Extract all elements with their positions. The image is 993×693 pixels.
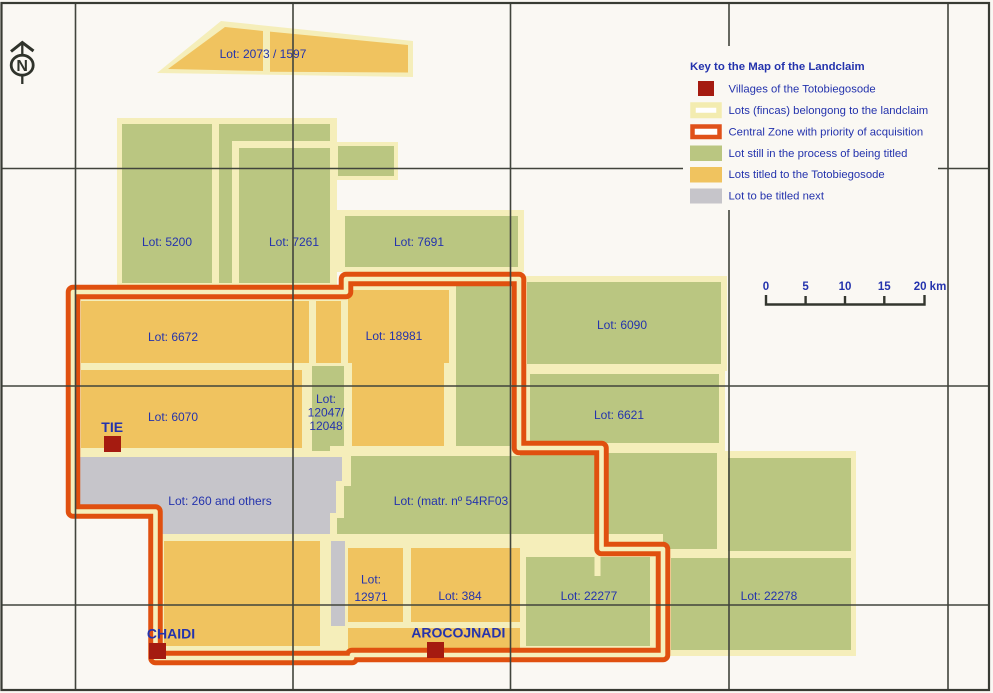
- svg-text:Lot: 384: Lot: 384: [438, 589, 482, 603]
- svg-text:Lot: 7691: Lot: 7691: [394, 235, 444, 249]
- svg-text:Lot: 6621: Lot: 6621: [594, 408, 644, 422]
- svg-text:Central Zone with priority of: Central Zone with priority of acquisitio…: [729, 126, 924, 138]
- svg-text:Lot: 260 and others: Lot: 260 and others: [168, 494, 271, 508]
- svg-text:Key to the Map of the Landclai: Key to the Map of the Landclaim: [690, 61, 865, 73]
- svg-text:Lots (fincas) belongong to the: Lots (fincas) belongong to the landclaim: [729, 105, 929, 117]
- svg-text:Lot: 6070: Lot: 6070: [148, 410, 198, 424]
- svg-text:Lot: 5200: Lot: 5200: [142, 235, 192, 249]
- svg-text:0: 0: [763, 281, 769, 293]
- svg-text:Lot still in the process of be: Lot still in the process of being titled: [729, 148, 908, 160]
- svg-text:Lot: 6090: Lot: 6090: [597, 318, 647, 332]
- svg-text:Lot: 22277: Lot: 22277: [561, 589, 618, 603]
- svg-text:Lots titled to the Totobiegoso: Lots titled to the Totobiegosode: [729, 169, 885, 181]
- svg-text:Lot:: Lot:: [361, 573, 381, 587]
- svg-text:Lot: 6672: Lot: 6672: [148, 330, 198, 344]
- svg-text:Villages of the Totobiegosode: Villages of the Totobiegosode: [729, 84, 876, 96]
- svg-text:Lot to be titled next: Lot to be titled next: [729, 191, 825, 203]
- svg-text:Lot:: Lot:: [316, 392, 336, 406]
- svg-text:Lot: 18981: Lot: 18981: [366, 329, 423, 343]
- svg-text:20 km: 20 km: [914, 281, 947, 293]
- svg-text:12971: 12971: [354, 590, 388, 604]
- svg-text:Lot: 7261: Lot: 7261: [269, 235, 319, 249]
- svg-text:5: 5: [802, 281, 809, 293]
- svg-text:AROCOJNADI: AROCOJNADI: [411, 625, 505, 641]
- svg-text:N: N: [16, 58, 28, 75]
- svg-text:TIE: TIE: [101, 419, 123, 435]
- svg-text:CHAIDI: CHAIDI: [147, 626, 195, 642]
- svg-text:12048: 12048: [309, 419, 343, 433]
- svg-text:12047/: 12047/: [308, 406, 345, 420]
- svg-text:10: 10: [839, 281, 852, 293]
- svg-text:15: 15: [878, 281, 891, 293]
- svg-text:Lot: (matr. nº 54RF03: Lot: (matr. nº 54RF03: [394, 494, 509, 508]
- svg-text:Lot: 22278: Lot: 22278: [741, 589, 798, 603]
